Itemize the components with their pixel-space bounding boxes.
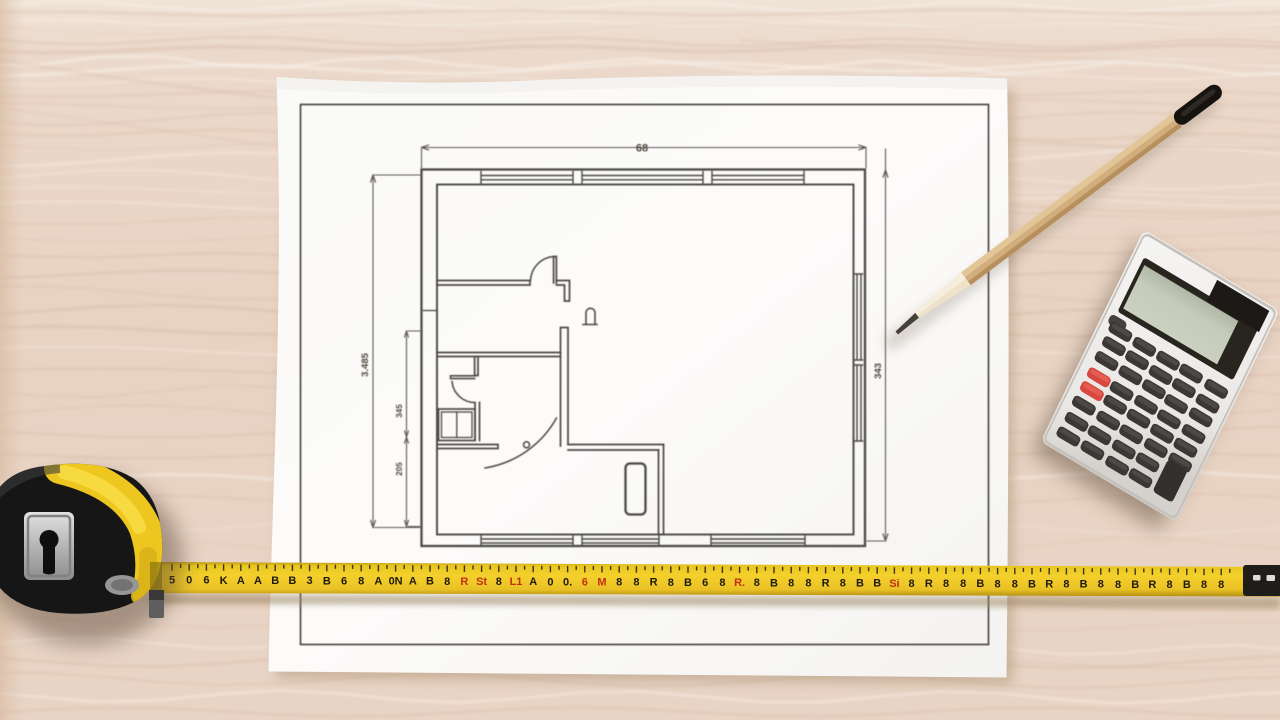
svg-text:343: 343 <box>873 363 884 379</box>
svg-text:3.485: 3.485 <box>360 352 371 376</box>
svg-text:8: 8 <box>995 578 1001 590</box>
svg-text:A: A <box>254 575 262 587</box>
svg-text:A: A <box>374 576 382 588</box>
svg-text:R: R <box>650 577 658 589</box>
svg-text:8: 8 <box>960 578 966 590</box>
svg-text:B: B <box>770 577 778 589</box>
svg-text:0.: 0. <box>563 576 572 588</box>
svg-text:8: 8 <box>754 577 760 589</box>
svg-text:8: 8 <box>788 577 794 589</box>
svg-text:8: 8 <box>1201 579 1207 591</box>
svg-text:R: R <box>1045 579 1053 591</box>
svg-text:Si: Si <box>889 578 899 590</box>
svg-text:0: 0 <box>547 576 553 588</box>
svg-text:A: A <box>237 575 245 587</box>
svg-text:B: B <box>976 578 984 590</box>
svg-text:68: 68 <box>636 143 648 155</box>
svg-text:345: 345 <box>395 404 404 418</box>
svg-text:0N: 0N <box>389 576 403 588</box>
svg-text:B: B <box>1028 578 1036 590</box>
svg-text:B: B <box>684 577 692 589</box>
svg-text:B: B <box>1131 579 1139 591</box>
svg-text:8: 8 <box>1063 579 1069 591</box>
svg-text:8: 8 <box>496 576 502 588</box>
svg-text:8: 8 <box>909 578 915 590</box>
svg-text:6: 6 <box>582 576 588 588</box>
svg-text:B: B <box>873 578 881 590</box>
svg-text:8: 8 <box>1012 578 1018 590</box>
svg-text:B: B <box>1183 579 1191 591</box>
svg-text:8: 8 <box>1218 579 1224 591</box>
svg-text:K: K <box>220 575 228 587</box>
svg-text:6: 6 <box>702 577 708 589</box>
svg-text:0: 0 <box>186 575 192 587</box>
svg-text:A: A <box>529 576 537 588</box>
svg-text:B: B <box>426 576 434 588</box>
svg-text:A: A <box>409 576 417 588</box>
svg-text:8: 8 <box>719 577 725 589</box>
svg-text:3: 3 <box>307 575 313 587</box>
svg-text:B: B <box>856 578 864 590</box>
svg-text:R: R <box>822 578 830 590</box>
svg-text:R: R <box>460 576 468 588</box>
svg-text:B: B <box>323 575 331 587</box>
svg-text:B: B <box>288 575 296 587</box>
svg-text:R: R <box>925 578 933 590</box>
svg-text:8: 8 <box>358 575 364 587</box>
svg-text:R.: R. <box>734 577 745 589</box>
svg-text:8: 8 <box>1167 579 1173 591</box>
svg-text:8: 8 <box>1115 579 1121 591</box>
svg-text:205: 205 <box>395 462 404 476</box>
svg-text:6: 6 <box>203 575 209 587</box>
svg-text:6: 6 <box>341 575 347 587</box>
svg-text:8: 8 <box>943 578 949 590</box>
svg-text:M: M <box>597 577 606 589</box>
svg-text:8: 8 <box>668 577 674 589</box>
svg-text:B: B <box>271 575 279 587</box>
svg-text:8: 8 <box>444 576 450 588</box>
svg-text:L1: L1 <box>510 576 523 588</box>
svg-text:St: St <box>476 576 487 588</box>
svg-text:8: 8 <box>840 578 846 590</box>
svg-text:8: 8 <box>616 577 622 589</box>
svg-text:8: 8 <box>805 577 811 589</box>
svg-text:B: B <box>1080 579 1088 591</box>
svg-text:8: 8 <box>1098 579 1104 591</box>
svg-text:8: 8 <box>633 577 639 589</box>
svg-text:R: R <box>1148 579 1156 591</box>
